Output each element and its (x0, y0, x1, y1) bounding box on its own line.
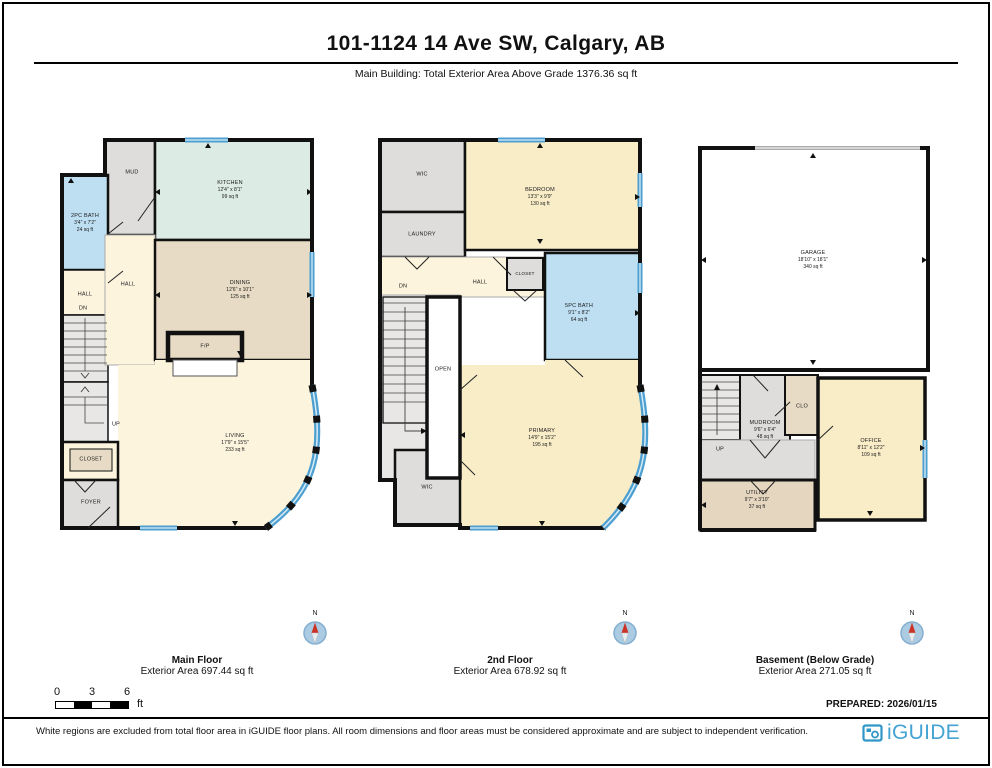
floor-area: Exterior Area 697.44 sq ft (141, 666, 254, 677)
compass-north-label: N (610, 610, 640, 618)
room-label-garage: GARAGE18'10" x 18'1"340 sq ft (798, 250, 828, 270)
room-label-hall: HALL (121, 281, 136, 288)
stairs-dn-label: DN (79, 305, 87, 312)
iguide-logo: iGUIDE (862, 721, 960, 745)
basement-caption: Basement (Below Grade) Exterior Area 271… (756, 655, 874, 677)
title-divider (34, 62, 958, 64)
floor-name: Basement (Below Grade) (756, 655, 874, 666)
compass-north-label: N (300, 610, 330, 618)
room-label-kitchen: KITCHEN12'4" x 8'1"99 sq ft (217, 180, 243, 200)
compass-north-label: N (897, 610, 927, 618)
room-label-office: OFFICE8'11" x 12'2"109 sq ft (857, 438, 884, 458)
compass-icon: N (300, 610, 330, 653)
compass-rose (897, 618, 927, 648)
main-floor-caption: Main Floor Exterior Area 697.44 sq ft (141, 655, 254, 677)
compass-rose (300, 618, 330, 648)
floor-area: Exterior Area 271.05 sq ft (756, 666, 874, 677)
open-to-below (427, 297, 460, 478)
rooms (700, 148, 928, 530)
room-label-laundry: LAUNDRY (408, 231, 436, 238)
iguide-logo-text: iGUIDE (887, 721, 960, 745)
fireplace-label: F/P (200, 343, 209, 350)
scale-bar: 0 3 6 ft (52, 686, 212, 716)
room-label-bedroom: BEDROOM13'3" x 9'9"130 sq ft (525, 187, 555, 207)
room-label-living: LIVING17'9" x 15'5"233 sq ft (221, 433, 248, 453)
floor-area: Exterior Area 678.92 sq ft (454, 666, 567, 677)
prepared-date: PREPARED: 2026/01/15 (826, 699, 937, 710)
scale-unit-label: ft (137, 698, 143, 710)
room-label-foyer: FOYER (81, 499, 101, 506)
page-title: 101-1124 14 Ave SW, Calgary, AB (0, 32, 992, 56)
main-floor-plan: MUD KITCHEN12'4" x 8'1"99 sq ft 2PC BATH… (60, 135, 325, 555)
room-label-primary: PRIMARY14'9" x 15'2"195 sq ft (528, 428, 555, 448)
room-label-wic-bottom: WIC (421, 484, 432, 491)
room-label-hall: HALL (473, 279, 488, 286)
room-label-utility: UTILITY9'7" x 3'10"37 sq ft (745, 490, 770, 510)
fireplace (168, 333, 242, 376)
room-label-mud: MUD (125, 169, 138, 176)
scale-bar-segments (55, 701, 129, 709)
basement-plan: GARAGE18'10" x 18'1"340 sq ft UP MUDROOM… (695, 140, 935, 540)
floor-name: Main Floor (141, 655, 254, 666)
room-label-mudroom: MUDROOM9'6" x 6'4"48 sq ft (749, 420, 780, 440)
scale-tick-0: 0 (54, 686, 60, 698)
second-floor-caption: 2nd Floor Exterior Area 678.92 sq ft (454, 655, 567, 677)
open-label: OPEN (435, 366, 451, 373)
stairs-up-label: UP (716, 446, 724, 453)
room-label-closet: CLOSET (79, 456, 102, 463)
compass-rose (610, 618, 640, 648)
rooms (380, 140, 645, 528)
basement-drawing (695, 140, 935, 540)
room-label-hall-left: HALL (78, 291, 93, 298)
floor-name: 2nd Floor (454, 655, 567, 666)
room-label-closet: CLOSET (515, 271, 534, 277)
second-floor-plan: WIC BEDROOM13'3" x 9'9"130 sq ft LAUNDRY… (375, 135, 650, 555)
room-label-2pc-bath: 2PC BATH3'4" x 7'2"24 sq ft (71, 213, 99, 233)
scale-tick-6: 6 (124, 686, 130, 698)
room-label-clo: CLO (796, 403, 808, 410)
page-subtitle: Main Building: Total Exterior Area Above… (0, 68, 992, 80)
stairs-up-label: UP (112, 421, 120, 428)
scale-tick-3: 3 (89, 686, 95, 698)
room-label-dining: DINING12'6" x 10'1"125 sq ft (226, 280, 253, 300)
compass-icon: N (897, 610, 927, 653)
compass-icon: N (610, 610, 640, 653)
disclaimer-text: White regions are excluded from total fl… (36, 726, 808, 737)
footer-divider (4, 717, 988, 719)
stairs-dn-label: DN (399, 283, 407, 290)
main-floor-drawing (60, 135, 325, 555)
room-label-5pc-bath: 5PC BATH9'1" x 8'2"64 sq ft (565, 303, 593, 323)
room-label-wic-top: WIC (416, 171, 427, 178)
iguide-logo-icon (862, 723, 884, 743)
second-floor-drawing (375, 135, 650, 555)
